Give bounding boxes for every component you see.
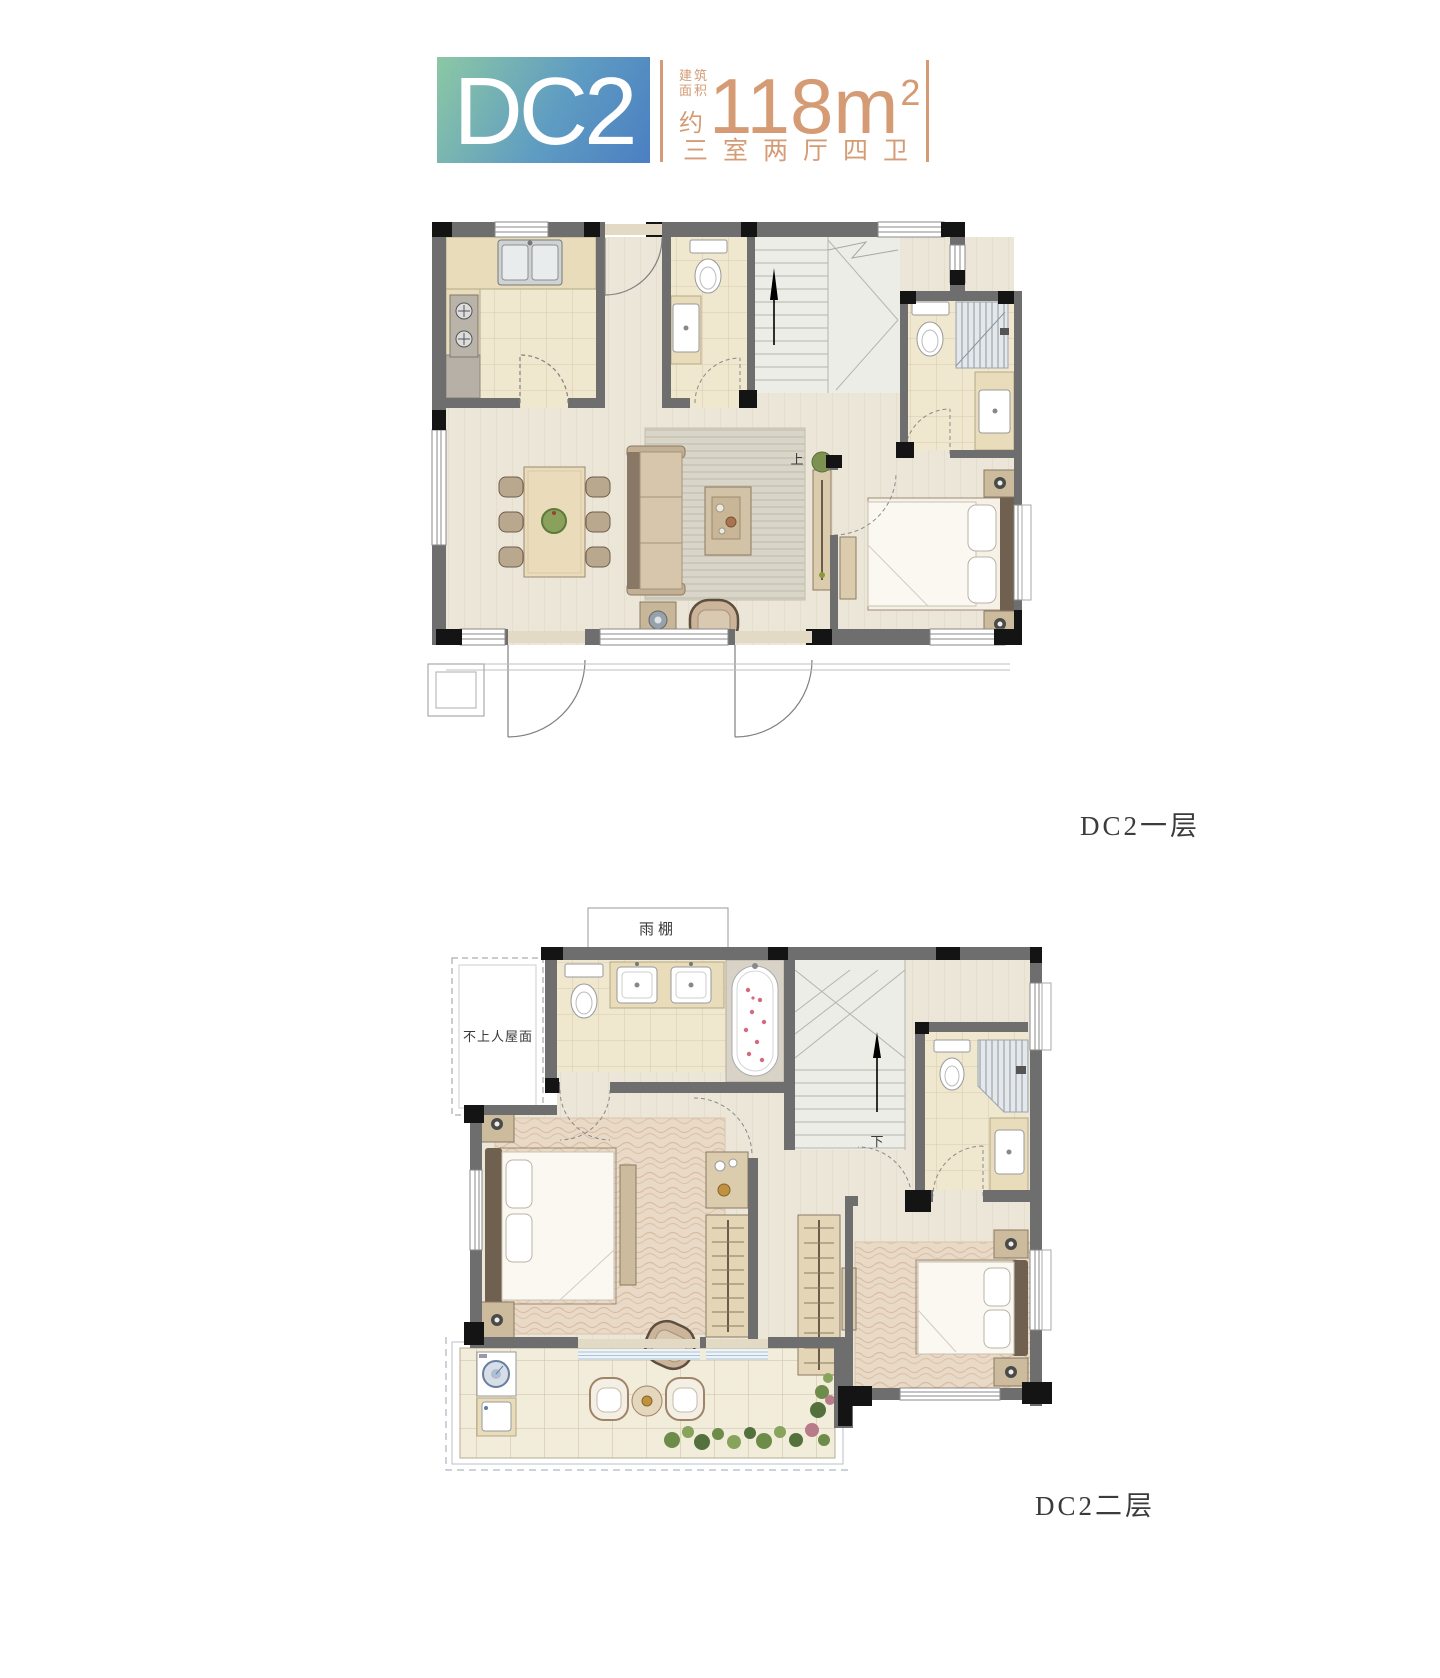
sink [979, 390, 1010, 433]
balcony-threshold [735, 631, 812, 643]
window [1014, 505, 1031, 600]
area-exponent: 2 [900, 72, 920, 113]
balcony-door-swing [735, 645, 812, 737]
wardrobe [706, 1215, 750, 1337]
stairs-down-label: 下 [870, 1134, 883, 1149]
rain-canopy: 雨棚 [588, 908, 728, 948]
sink [995, 1130, 1024, 1174]
coffee-table [705, 487, 751, 555]
stairs-up-label: 上 [790, 452, 803, 467]
shoe-cabinet [840, 537, 856, 599]
washing-machine [477, 1352, 516, 1396]
window [470, 1170, 482, 1250]
bathtub [726, 960, 784, 1082]
tv-console [812, 452, 832, 590]
kitchen-sink [498, 240, 562, 285]
duvet [868, 502, 976, 606]
sofa [627, 446, 685, 595]
wardrobe [798, 1215, 840, 1375]
window [495, 222, 548, 237]
window [432, 430, 446, 545]
laundry-sink [477, 1398, 516, 1436]
floor1-label: DC2一层 [1080, 804, 1200, 843]
pillow [506, 1160, 532, 1208]
roof-label: 不上人屋面 [463, 1029, 533, 1044]
terrace-chair [590, 1378, 628, 1420]
inaccessible-roof: 不上人屋面 [452, 958, 543, 1115]
window [460, 629, 505, 645]
window [1030, 1250, 1051, 1330]
exterior-sill [446, 664, 1010, 670]
floorplan-sheet: DC2 建筑 面积 约 118m2 三室两厅四卫 [0, 0, 1440, 1678]
balcony-door-swing [508, 645, 585, 737]
slider-threshold [578, 1339, 700, 1348]
window [600, 629, 728, 645]
exterior-step [436, 672, 476, 708]
sink [673, 304, 699, 352]
bed-bench [620, 1165, 636, 1285]
dresser [706, 1152, 748, 1208]
header-divider-right [926, 60, 929, 162]
balcony-threshold [508, 631, 585, 643]
sink [617, 962, 657, 1003]
dining-table [524, 467, 585, 577]
pillow [506, 1214, 532, 1262]
terrace-chair [666, 1378, 704, 1420]
window [1030, 983, 1051, 1050]
floor1-plan: 上 [425, 160, 1045, 760]
window [900, 1388, 1000, 1400]
slider-sill [578, 1349, 700, 1360]
header-divider-left [660, 60, 663, 162]
unit-name: DC2 [453, 64, 633, 160]
pillow [984, 1310, 1010, 1348]
window [878, 222, 944, 237]
headboard [485, 1148, 502, 1304]
entry-threshold [605, 224, 662, 235]
slider-sill [706, 1349, 768, 1360]
stove [450, 295, 478, 357]
slider-threshold [706, 1339, 768, 1348]
pillow [984, 1268, 1010, 1306]
shower [956, 302, 1009, 368]
terrace-table [632, 1386, 662, 1416]
unit-logo: DC2 [437, 57, 650, 163]
area-label: 建筑 面积 [679, 68, 709, 98]
pillow [968, 557, 996, 603]
window [930, 629, 1005, 645]
kitchen-cabinet [446, 355, 480, 398]
floor2-plan: 雨棚 不上人屋面 下 [420, 850, 1080, 1480]
floor2-label: DC2二层 [1035, 1484, 1155, 1523]
canopy-label: 雨棚 [639, 921, 677, 938]
pillow [968, 505, 996, 551]
sink [671, 962, 711, 1003]
